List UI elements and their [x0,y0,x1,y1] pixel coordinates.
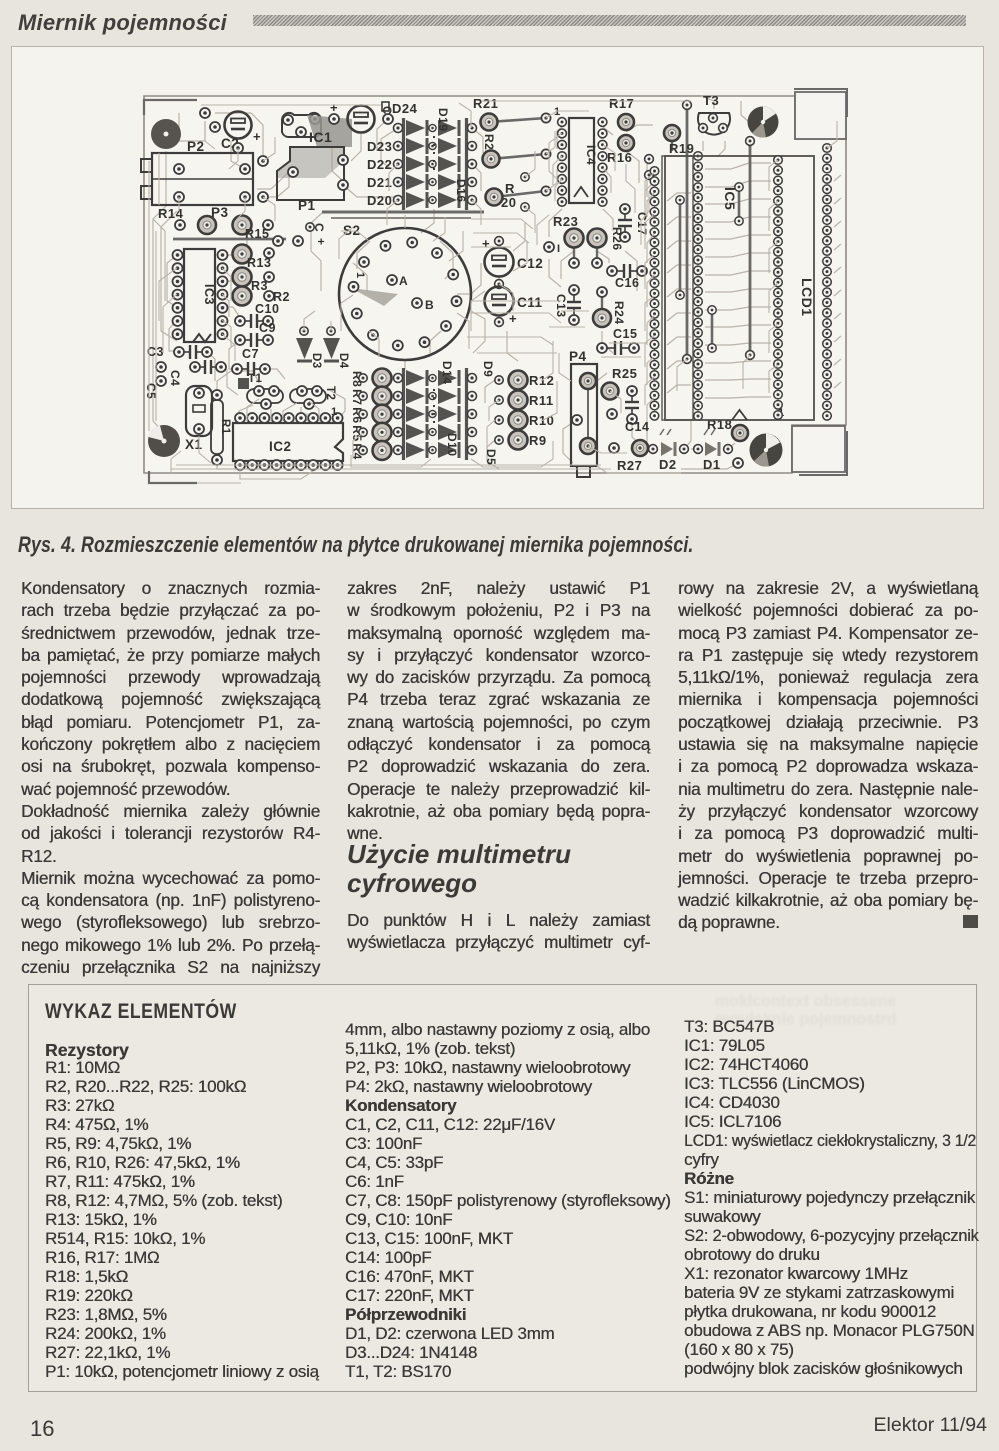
svg-text:R21: R21 [473,96,498,111]
svg-text:D5: D5 [484,449,498,465]
svg-text:C14: C14 [625,420,649,434]
svg-text:C16: C16 [615,276,639,290]
svg-text:D2: D2 [659,457,677,472]
svg-text:R1: R1 [219,419,231,435]
svg-text:IC3: IC3 [202,284,216,305]
svg-text:IC1: IC1 [309,129,332,145]
svg-text:D3: D3 [310,353,322,369]
svg-text:P4: P4 [569,349,587,364]
svg-text:D19: D19 [436,108,450,132]
svg-text:R14: R14 [158,206,184,221]
svg-text:+: + [330,100,338,115]
svg-text:+: + [314,238,328,246]
svg-text:R9: R9 [529,433,547,448]
svg-text:P3: P3 [211,205,229,220]
svg-text:IC2: IC2 [269,439,292,454]
svg-text:IC5: IC5 [722,187,738,210]
svg-text:R13: R13 [247,256,271,270]
svg-text:R15: R15 [245,227,269,241]
svg-text:R27: R27 [617,458,642,473]
svg-text:D1: D1 [703,457,721,472]
svg-text:D23: D23 [367,139,392,154]
svg-text:R11: R11 [529,393,554,408]
svg-text:D16: D16 [454,179,468,203]
svg-text:C4: C4 [168,370,182,386]
svg-text:C10: C10 [255,302,279,316]
svg-text:D14: D14 [440,361,454,385]
svg-text:C13: C13 [554,294,568,318]
svg-text:C15: C15 [613,327,637,341]
svg-text:P1: P1 [298,198,316,213]
svg-text:X1: X1 [185,437,203,452]
svg-text:R3: R3 [251,279,268,293]
svg-text:R23: R23 [553,214,578,229]
svg-text:R17: R17 [609,96,634,111]
svg-text:B: B [425,298,434,312]
svg-text:C7: C7 [242,347,259,361]
svg-text:LCD1: LCD1 [799,278,815,317]
svg-text:A: A [399,274,408,288]
svg-text:I: I [557,243,561,255]
svg-text:P2: P2 [187,139,205,154]
svg-text:C9: C9 [259,321,276,335]
svg-text:1: 1 [354,272,366,279]
svg-text:C12: C12 [517,256,543,271]
svg-text:D20: D20 [367,193,392,208]
svg-text:D24: D24 [392,101,418,116]
svg-text:D10: D10 [445,433,459,457]
svg-text:IC4: IC4 [584,145,598,165]
svg-text:R25: R25 [612,366,637,381]
svg-text:+: + [482,236,490,251]
svg-text:R24: R24 [612,301,626,325]
svg-text:T3: T3 [703,93,719,108]
svg-text:+: + [253,129,261,144]
svg-text:T2: T2 [324,386,336,400]
svg-text:R16: R16 [607,150,632,165]
svg-text:1: 1 [331,406,338,418]
svg-text:R19: R19 [669,141,694,156]
svg-text:D9: D9 [481,361,495,377]
svg-text:C11: C11 [517,295,543,310]
svg-text:D22: D22 [367,157,392,172]
svg-text:T1: T1 [248,373,263,385]
svg-text:D4: D4 [337,353,349,369]
svg-text:R: R [505,181,515,196]
